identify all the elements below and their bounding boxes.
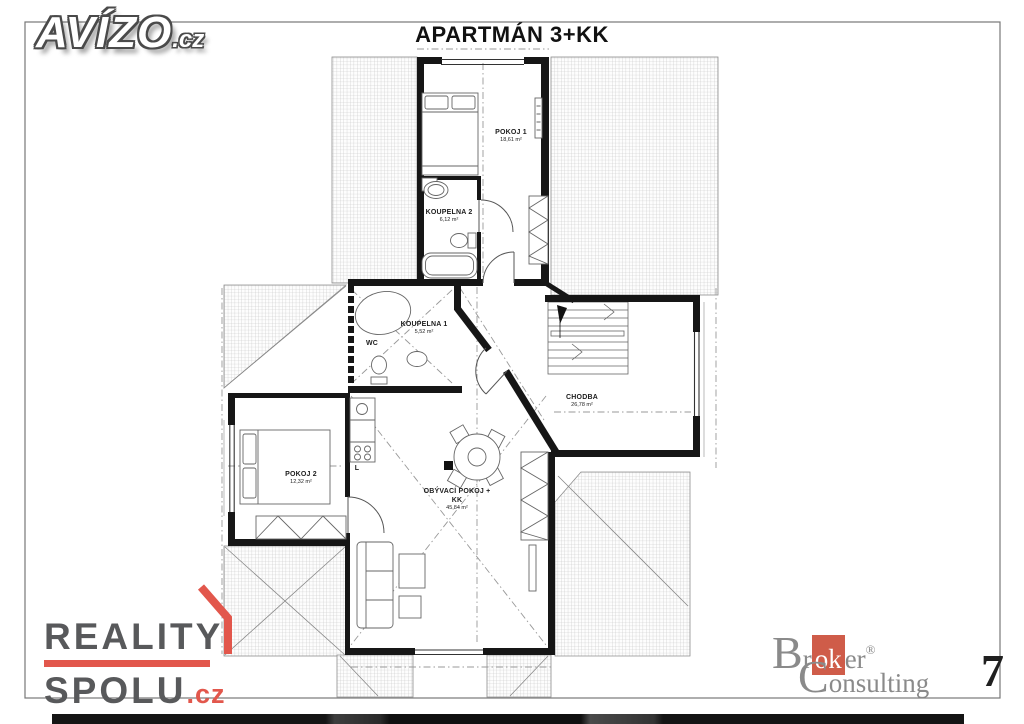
structural-column [444,461,453,470]
reality-spolu-logo: REALITY SPOLU.cz [44,618,264,655]
room-label-koupelna2: KOUPELNA 2 6,12 m² [426,208,473,224]
bed-pokoj2 [240,430,330,504]
room-label-chodba: CHODBA 26,78 m² [566,393,598,409]
wardrobe-pokoj1 [529,196,548,264]
reality-spolu-line2: SPOLU.cz [44,672,226,709]
floorplan-page: APARTMÁN 3+KK POKOJ 1 18,61 m² KOUPELNA … [0,0,1024,724]
reality-spolu-underline [44,660,210,667]
stairs [548,302,628,374]
room-label-pokoj1: POKOJ 1 18,61 m² [495,128,527,144]
sofa [357,542,425,628]
reality-spolu-line1: REALITY [44,618,264,655]
kitchenette [350,398,375,462]
wardrobe-pokoj2 [256,516,346,539]
avizo-logo-tld: .cz [172,26,204,53]
frame-border [25,22,1000,698]
room-label-koupelna1: KOUPELNA 1 5,52 m² [401,320,448,336]
reality-spolu-tld: .cz [186,679,225,709]
avizo-logo-text: AVÍZO [36,8,172,57]
room-label-pokoj2: POKOJ 2 12,32 m² [285,470,317,486]
room-label-obyvaci-pokoj: OBÝVACÍ POKOJ + KK 45,84 m² [424,487,491,512]
avizo-logo: AVÍZO.cz [36,8,204,58]
radiator [535,98,542,138]
room-label-kitchen-l: L [355,464,359,473]
broker-line2: Consulting [798,654,929,700]
bathroom2-fixtures [422,182,477,279]
room-label-wc: WC [366,339,378,348]
broker-consulting-logo: Broker® Consulting 7 [772,630,1004,704]
next-photo-edge [52,714,964,724]
broker-number: 7 [981,644,1004,697]
tv-board [529,545,536,591]
wardrobe-living [521,452,548,540]
dining-table [447,425,504,488]
